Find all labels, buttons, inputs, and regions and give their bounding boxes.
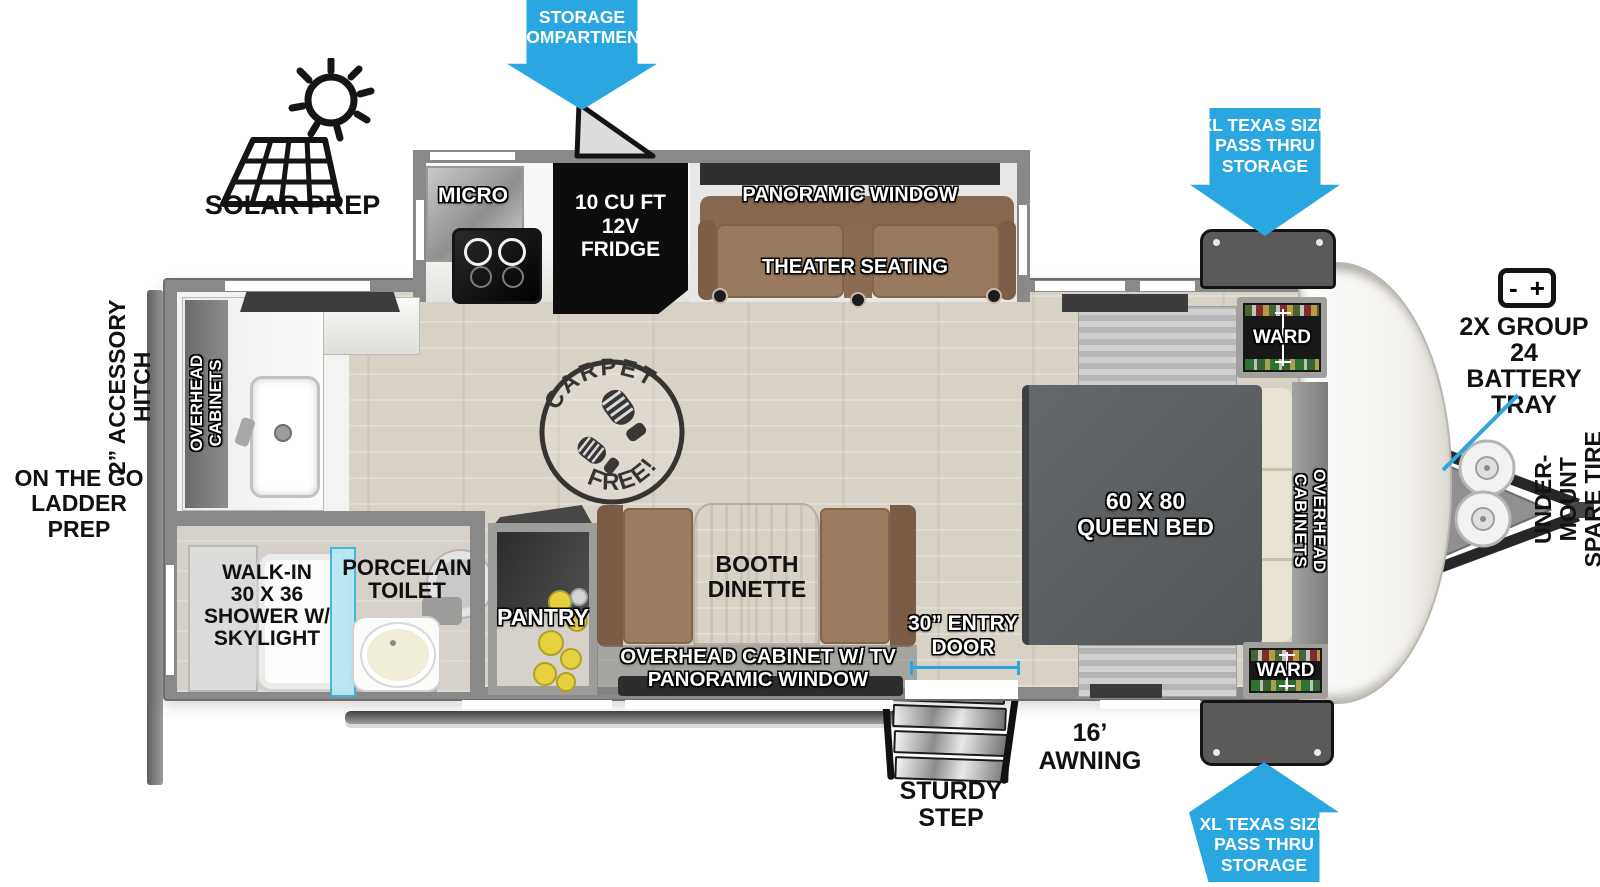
wardrobe-label: WARD xyxy=(1253,327,1311,348)
recliner-button-icon xyxy=(850,292,866,308)
rear-shelf xyxy=(240,292,400,312)
window xyxy=(1019,205,1027,275)
burner-icon xyxy=(498,238,526,266)
window xyxy=(1140,281,1195,291)
window xyxy=(1035,281,1125,291)
pass-thru-storage-box-bottom xyxy=(1200,700,1334,766)
shower-label: WALK-IN 30 X 36 SHOWER W/ SKYLIGHT xyxy=(182,562,352,650)
spare-tire-label: UNDER-MOUNT SPARE TIRE xyxy=(1531,413,1600,585)
porcelain-toilet-label: PORCELAIN TOILET xyxy=(338,556,476,602)
sturdy-step-label: STURDY STEP xyxy=(896,778,1006,831)
window xyxy=(416,200,424,260)
panoramic-window-bottom-label: PANORAMIC WINDOW xyxy=(598,669,918,692)
bedroom-window xyxy=(1090,684,1162,698)
screw-icon xyxy=(1213,239,1220,246)
canned-goods-icon xyxy=(533,662,557,686)
ladder-prep-label: ON THE GO LADDER PREP xyxy=(0,466,158,542)
pantry-label: PANTRY xyxy=(490,605,596,631)
carpet-free-stamp: CARPET FREE! xyxy=(537,357,687,507)
screw-icon xyxy=(1316,239,1323,246)
bedroom-overhead-cabinet xyxy=(1062,294,1188,312)
wardrobe-front-top: WARD xyxy=(1237,297,1327,378)
dinette-bench-back xyxy=(597,505,623,647)
queen-bed-label: 60 X 80 QUEEN BED xyxy=(1077,489,1214,541)
window xyxy=(625,700,893,709)
pass-thru-storage-arrow-bottom: XL TEXAS SIZE PASS THRU STORAGE xyxy=(1189,762,1339,882)
pass-thru-storage-box-top xyxy=(1200,229,1336,289)
burner-icon xyxy=(502,266,524,288)
awning-label: 16’ AWNING xyxy=(1020,719,1160,775)
refrigerator-label: 10 CU FT 12V FRIDGE xyxy=(575,191,666,262)
burner-icon xyxy=(470,266,492,288)
toilet-flush-icon xyxy=(390,640,396,646)
entry-door-label: 30” ENTRY DOOR xyxy=(903,612,1023,659)
bathroom-wall xyxy=(177,511,485,526)
overhead-cabinets-bedroom-label: OVERHEAD CABINETS xyxy=(1291,426,1329,616)
solar-prep-label: SOLAR PREP xyxy=(195,190,390,220)
panoramic-window-top-label: PANORAMIC WINDOW xyxy=(695,184,1005,206)
window xyxy=(166,565,174,675)
wardrobe-label: WARD xyxy=(1256,660,1314,681)
accessory-hitch-label: 2” ACCESSORY HITCH xyxy=(105,299,155,475)
microwave-label: MICRO xyxy=(424,184,522,208)
pass-thru-storage-arrow-top: XL TEXAS SIZE PASS THRU STORAGE xyxy=(1190,108,1340,236)
window xyxy=(225,281,370,291)
theater-seating-label: THEATER SEATING xyxy=(710,256,1000,278)
step-tread xyxy=(893,730,1008,757)
theater-window xyxy=(700,163,1000,185)
overhead-cabinet-tv-label: OVERHEAD CABINET W/ TV xyxy=(598,646,918,669)
window xyxy=(1100,700,1200,709)
toilet-seat xyxy=(362,624,434,686)
bed-pillows xyxy=(1262,388,1292,642)
window xyxy=(462,700,612,709)
step-tread xyxy=(892,704,1007,731)
bed-step-dresser xyxy=(1078,306,1237,388)
floorplan-diagram: MICRO 10 CU FT 12V FRIDGE PANORAMIC WIND… xyxy=(0,0,1600,887)
sofa-armrest xyxy=(999,220,1016,300)
theater-sofa xyxy=(698,194,1016,300)
dinette-bench-seat xyxy=(623,508,693,644)
battery-tray-label: 2X GROUP 24 BATTERY TRAY xyxy=(1448,314,1600,418)
queen-bed: 60 X 80 QUEEN BED xyxy=(1022,385,1262,645)
battery-plus: + xyxy=(1530,273,1545,304)
entry-door-measure-bracket xyxy=(910,661,1020,675)
dinette-bench-seat xyxy=(820,508,890,644)
wardrobe-front-bottom: WARD xyxy=(1243,642,1328,699)
entry-door-opening xyxy=(905,680,1018,699)
recliner-button-icon xyxy=(712,288,728,304)
battery-minus: - xyxy=(1509,273,1518,304)
refrigerator: 10 CU FT 12V FRIDGE xyxy=(553,163,688,290)
canned-goods-icon xyxy=(538,630,564,656)
battery-icon: - + xyxy=(1498,268,1556,308)
canned-goods-icon xyxy=(560,648,582,670)
awning-rail xyxy=(345,711,937,724)
overhead-cabinets-rear-label: OVERHEAD CABINETS xyxy=(187,348,225,458)
window xyxy=(430,152,515,160)
sink-drain-icon xyxy=(274,424,292,442)
storage-compartment-arrow: STORAGE COMPARTMENT xyxy=(507,0,657,110)
screw-icon xyxy=(1314,749,1321,756)
cooktop xyxy=(452,228,542,304)
burner-icon xyxy=(464,238,492,266)
screw-icon xyxy=(1213,749,1220,756)
booth-dinette-label: BOOTH DINETTE xyxy=(694,552,820,602)
canned-goods-icon xyxy=(556,672,576,692)
recliner-button-icon xyxy=(986,288,1002,304)
